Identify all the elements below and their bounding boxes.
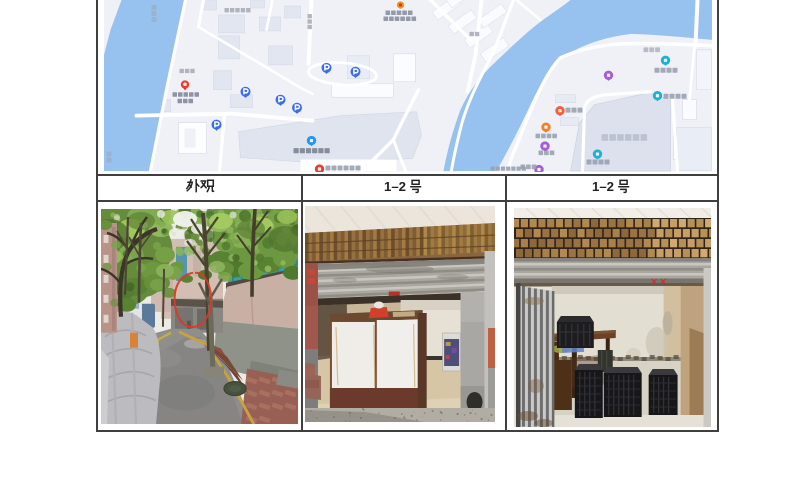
svg-text:1–2: 1–2 [384, 179, 406, 194]
svg-text:1–2: 1–2 [592, 179, 614, 194]
